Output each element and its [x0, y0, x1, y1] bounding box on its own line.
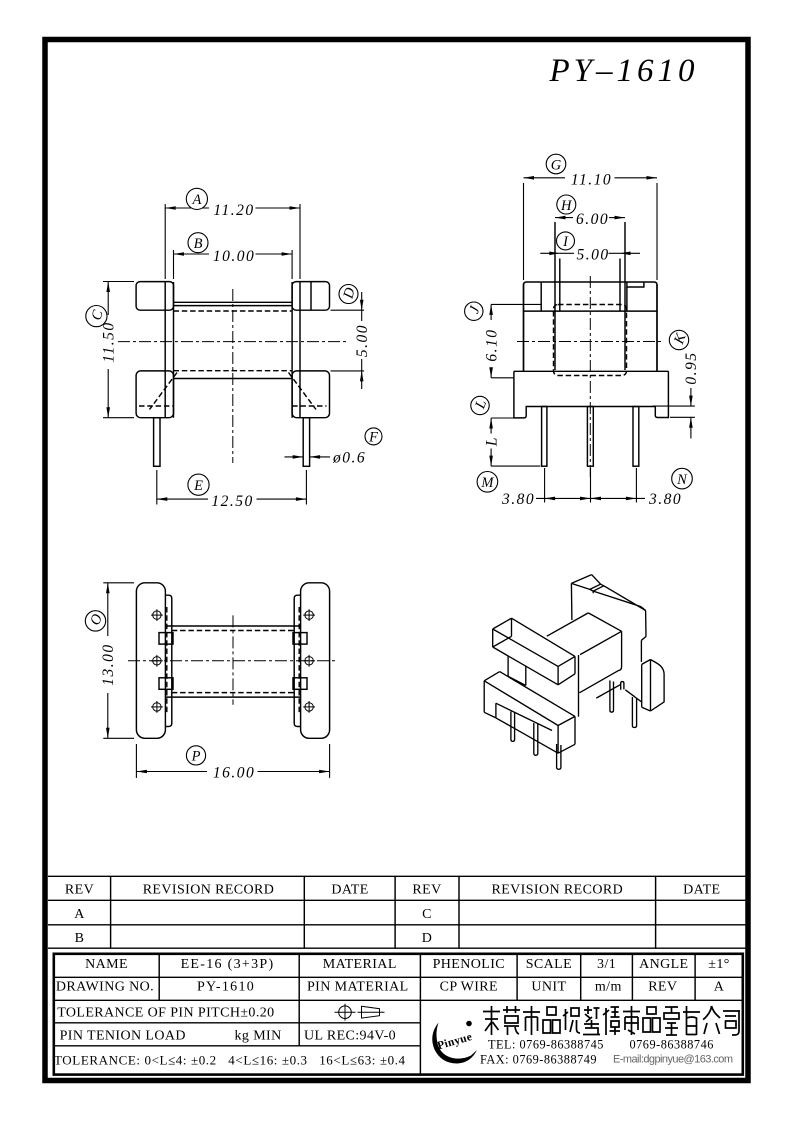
- svg-text:UNIT: UNIT: [531, 980, 566, 995]
- svg-text:C: C: [422, 907, 432, 922]
- svg-text:11.20: 11.20: [213, 202, 254, 219]
- svg-text:6.10: 6.10: [483, 328, 500, 361]
- svg-text:L: L: [483, 436, 500, 447]
- svg-text:DATE: DATE: [683, 882, 720, 897]
- svg-text:3.80: 3.80: [648, 491, 682, 508]
- svg-text:10.00: 10.00: [213, 248, 255, 265]
- svg-text:3/1: 3/1: [597, 957, 616, 972]
- svg-text:3.80: 3.80: [501, 491, 535, 508]
- svg-text:ø0.6: ø0.6: [332, 449, 366, 466]
- svg-text:MATERIAL: MATERIAL: [323, 957, 397, 972]
- svg-text:TOLERANCE: 0<L≤4: ±0.2 4<L≤1: TOLERANCE: 0<L≤4: ±0.2 4<L≤16: ±0.3 16<L…: [54, 1052, 406, 1067]
- svg-text:P: P: [191, 749, 201, 765]
- svg-text:ANGLE: ANGLE: [639, 957, 688, 972]
- svg-text:DATE: DATE: [331, 882, 368, 897]
- svg-text:REV: REV: [648, 980, 677, 995]
- svg-text:E-mail:dgpinyue@163.com: E-mail:dgpinyue@163.com: [613, 1054, 733, 1066]
- svg-text:FAX: 0769-86388749: FAX: 0769-86388749: [480, 1053, 597, 1067]
- svg-text:A: A: [74, 907, 85, 922]
- svg-text:REV: REV: [412, 882, 441, 897]
- svg-text:B: B: [75, 931, 85, 946]
- svg-text:A: A: [714, 980, 725, 995]
- svg-text:NAME: NAME: [85, 957, 128, 972]
- svg-text:11.50: 11.50: [100, 321, 117, 362]
- svg-text:0769-86388746: 0769-86388746: [630, 1038, 714, 1052]
- svg-text:A: A: [191, 192, 201, 208]
- svg-text:5.00: 5.00: [354, 324, 371, 357]
- svg-text:EE-16 (3+3P): EE-16 (3+3P): [181, 957, 275, 972]
- svg-text:H: H: [560, 198, 573, 214]
- svg-text:PY–1610: PY–1610: [548, 53, 698, 89]
- svg-text:M: M: [480, 475, 494, 491]
- svg-text:G: G: [551, 157, 562, 173]
- svg-text:B: B: [194, 236, 203, 252]
- svg-text:13.00: 13.00: [100, 643, 117, 685]
- svg-text:TOLERANCE OF PIN PITCH±0.20: TOLERANCE OF PIN PITCH±0.20: [57, 1005, 274, 1020]
- svg-text:±1°: ±1°: [708, 957, 729, 972]
- svg-text:6.00: 6.00: [576, 211, 609, 228]
- svg-text:12.50: 12.50: [211, 493, 253, 510]
- svg-text:REVISION RECORD: REVISION RECORD: [143, 882, 275, 897]
- svg-text:5.00: 5.00: [576, 246, 609, 263]
- svg-text:N: N: [676, 472, 688, 488]
- svg-text:m/m: m/m: [595, 980, 622, 995]
- svg-text:PHENOLIC: PHENOLIC: [433, 957, 505, 972]
- svg-text:PIN TENION LOAD: PIN TENION LOAD: [60, 1028, 186, 1043]
- svg-text:0.95: 0.95: [683, 351, 700, 384]
- svg-text:CP WIRE: CP WIRE: [440, 980, 498, 995]
- svg-text:PY-1610: PY-1610: [197, 980, 255, 995]
- svg-text:SCALE: SCALE: [526, 957, 572, 972]
- svg-text:11.10: 11.10: [571, 171, 612, 188]
- svg-text:TEL: 0769-86388745: TEL: 0769-86388745: [488, 1038, 604, 1052]
- svg-text:DRAWING NO.: DRAWING NO.: [56, 980, 154, 995]
- svg-text:UL REC:94V-0: UL REC:94V-0: [304, 1028, 396, 1043]
- svg-text:REVISION RECORD: REVISION RECORD: [491, 882, 623, 897]
- svg-text:D: D: [422, 931, 433, 946]
- svg-text:F: F: [368, 430, 378, 446]
- svg-text:kg MIN: kg MIN: [235, 1028, 282, 1043]
- svg-text:16.00: 16.00: [213, 764, 255, 781]
- svg-text:PIN MATERIAL: PIN MATERIAL: [307, 980, 409, 995]
- svg-text:REV: REV: [65, 882, 94, 897]
- svg-text:E: E: [193, 478, 203, 494]
